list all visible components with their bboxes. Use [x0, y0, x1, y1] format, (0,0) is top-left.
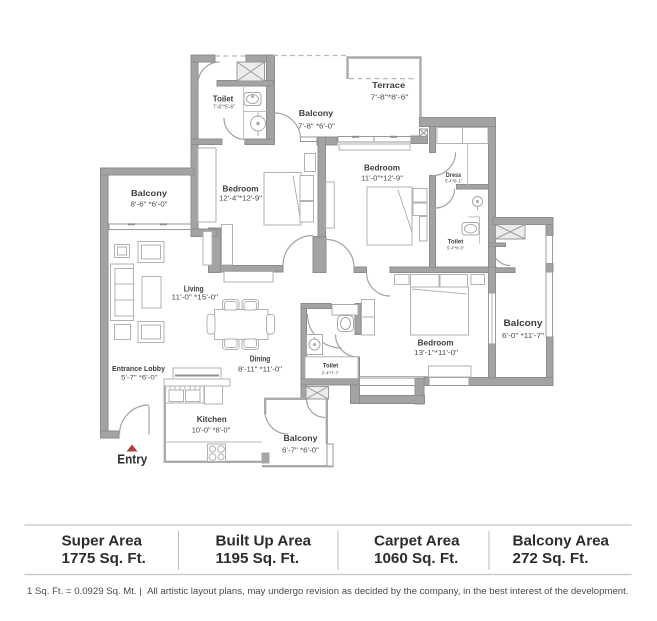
svg-text:Toilet: Toilet: [213, 95, 234, 104]
svg-text:10'-0" *8'-0": 10'-0" *8'-0": [192, 428, 231, 435]
svg-text:Dining: Dining: [250, 355, 271, 364]
svg-text:11'-0"*12'-9": 11'-0"*12'-9": [361, 176, 404, 183]
svg-text:7'-8" *6'-0": 7'-8" *6'-0": [298, 122, 335, 131]
svg-text:8'-6" *6'-0": 8'-6" *6'-0": [131, 200, 168, 209]
svg-text:Balcony: Balcony: [284, 433, 318, 443]
svg-text:Terrace: Terrace: [372, 80, 405, 90]
svg-text:7'-8"*8'-6": 7'-8"*8'-6": [371, 93, 409, 102]
svg-text:Balcony: Balcony: [131, 188, 167, 198]
svg-text:Balcony: Balcony: [504, 318, 543, 328]
svg-text:12'-4"*12'-9": 12'-4"*12'-9": [219, 196, 263, 203]
svg-text:1775 Sq. Ft.: 1775 Sq. Ft.: [62, 550, 146, 567]
svg-text:Super Area: Super Area: [62, 533, 143, 550]
svg-text:Bedroom: Bedroom: [364, 163, 400, 173]
svg-text:5'-7" *6'-0": 5'-7" *6'-0": [121, 374, 158, 381]
svg-text:5'-4"*6'-3": 5'-4"*6'-3": [447, 246, 464, 251]
svg-text:Toilet: Toilet: [323, 363, 339, 370]
svg-text:Kitchen: Kitchen: [197, 414, 227, 424]
svg-text:5'-4"*6'-1": 5'-4"*6'-1": [445, 179, 462, 184]
svg-text:Toilet: Toilet: [448, 238, 464, 245]
svg-text:8'-11" *11'-0": 8'-11" *11'-0": [238, 367, 283, 374]
svg-text:Living: Living: [184, 285, 204, 294]
svg-text:Entry: Entry: [117, 452, 148, 467]
svg-text:1 Sq. Ft. = 0.0929 Sq. Mt. |: 1 Sq. Ft. = 0.0929 Sq. Mt. | All artisti…: [27, 586, 628, 597]
svg-text:272 Sq. Ft.: 272 Sq. Ft.: [513, 550, 589, 567]
svg-text:Entrance Lobby: Entrance Lobby: [112, 364, 166, 373]
svg-text:6'-7" *6'-0": 6'-7" *6'-0": [282, 446, 319, 455]
svg-text:Bedroom: Bedroom: [418, 338, 454, 348]
svg-text:7'-6"*5'-6": 7'-6"*5'-6": [213, 105, 235, 111]
svg-text:5'-4"*7'-7": 5'-4"*7'-7": [322, 371, 339, 376]
svg-text:13'-1"*11'-0": 13'-1"*11'-0": [414, 350, 459, 357]
svg-text:6'-0" *11'-7": 6'-0" *11'-7": [502, 331, 544, 340]
svg-text:1195 Sq. Ft.: 1195 Sq. Ft.: [216, 550, 300, 567]
svg-text:Balcony: Balcony: [299, 108, 334, 118]
svg-text:11'-0" *15'-0": 11'-0" *15'-0": [172, 295, 219, 302]
svg-text:Bedroom: Bedroom: [223, 184, 259, 194]
svg-text:Built Up Area: Built Up Area: [216, 533, 312, 550]
svg-text:Balcony Area: Balcony Area: [513, 533, 610, 550]
svg-text:Carpet Area: Carpet Area: [374, 533, 460, 550]
svg-text:1060 Sq. Ft.: 1060 Sq. Ft.: [374, 550, 458, 567]
